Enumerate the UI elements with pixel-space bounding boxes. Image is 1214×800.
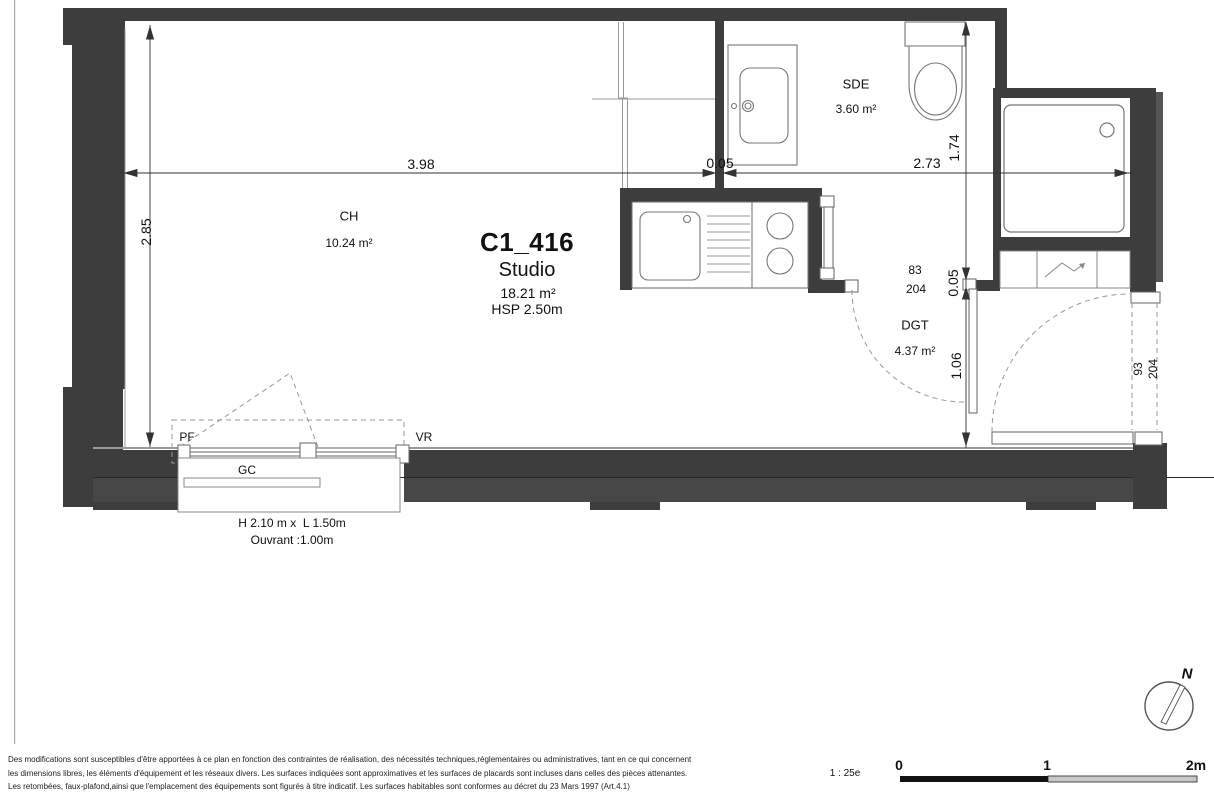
scale-tick-1: 1 <box>1043 758 1051 772</box>
scale-tick-2m: 2m <box>1186 758 1206 772</box>
window-swing <box>180 373 318 447</box>
north-label: N <box>1182 667 1193 682</box>
north-arrow <box>1145 682 1193 730</box>
washbasin <box>728 45 797 165</box>
dim-partition-b: 0.05 <box>946 269 960 296</box>
dim-right-width: 2.73 <box>913 156 940 170</box>
scale-ratio: 1 : 25e <box>830 769 861 779</box>
ceiling-height: HSP 2.50m <box>491 302 562 316</box>
dim-sde-depth: 1.74 <box>947 134 961 161</box>
entry-door-swing-arc <box>992 294 1130 432</box>
window-gc-label: GC <box>238 464 256 476</box>
room-ch-area: 10.24 m² <box>325 237 372 249</box>
sheet-border <box>14 0 15 744</box>
dim-entry-depth: 1.06 <box>949 352 963 379</box>
window-vr-label: VR <box>416 431 433 443</box>
room-sde-label: SDE <box>843 78 870 91</box>
floor-plan-canvas <box>0 0 1214 800</box>
window <box>172 373 409 512</box>
scale-bar <box>900 776 1197 782</box>
sde-door-width: 83 <box>908 264 921 276</box>
closet <box>1000 251 1130 288</box>
toilet <box>905 22 965 120</box>
room-sde-area: 3.60 m² <box>836 103 877 115</box>
entry-door-width: 93 <box>1132 362 1144 375</box>
disclaimer-line-2: les dimensions libres, les éléments d'éq… <box>8 767 808 781</box>
kitchenette <box>632 202 808 288</box>
entry-door-height: 204 <box>1147 359 1159 379</box>
sde-door <box>820 196 977 413</box>
window-pf-label: PF <box>179 431 194 443</box>
room-ch-label: CH <box>340 210 359 223</box>
shower <box>1004 105 1124 232</box>
floor-plan-page: 3.98 0.05 2.73 1.74 2.85 0.05 1.06 CH 10… <box>0 0 1214 800</box>
dim-ch-depth: 2.85 <box>139 218 153 245</box>
guardrail-box <box>178 458 400 512</box>
dim-partition-a: 0.05 <box>706 156 733 170</box>
dim-ch-width: 3.98 <box>407 157 434 171</box>
room-dgt-area: 4.37 m² <box>895 345 936 357</box>
disclaimer-line-1: Des modifications sont susceptibles d'êt… <box>8 753 808 767</box>
scale-tick-0: 0 <box>895 758 903 772</box>
unit-area: 18.21 m² <box>500 286 555 300</box>
window-opening: Ouvrant :1.00m <box>251 534 334 546</box>
light-partition <box>592 22 715 188</box>
north-needle <box>1161 685 1185 724</box>
window-size: H 2.10 m x L 1.50m <box>238 517 346 529</box>
disclaimer-line-3: Les retombées, faux-plafond,ainsi que l'… <box>8 780 808 794</box>
unit-type: Studio <box>499 260 556 280</box>
sde-door-height: 204 <box>906 283 926 295</box>
disclaimer: Des modifications sont susceptibles d'êt… <box>8 753 808 794</box>
unit-id: C1_416 <box>480 229 574 255</box>
room-dgt-label: DGT <box>901 319 928 332</box>
